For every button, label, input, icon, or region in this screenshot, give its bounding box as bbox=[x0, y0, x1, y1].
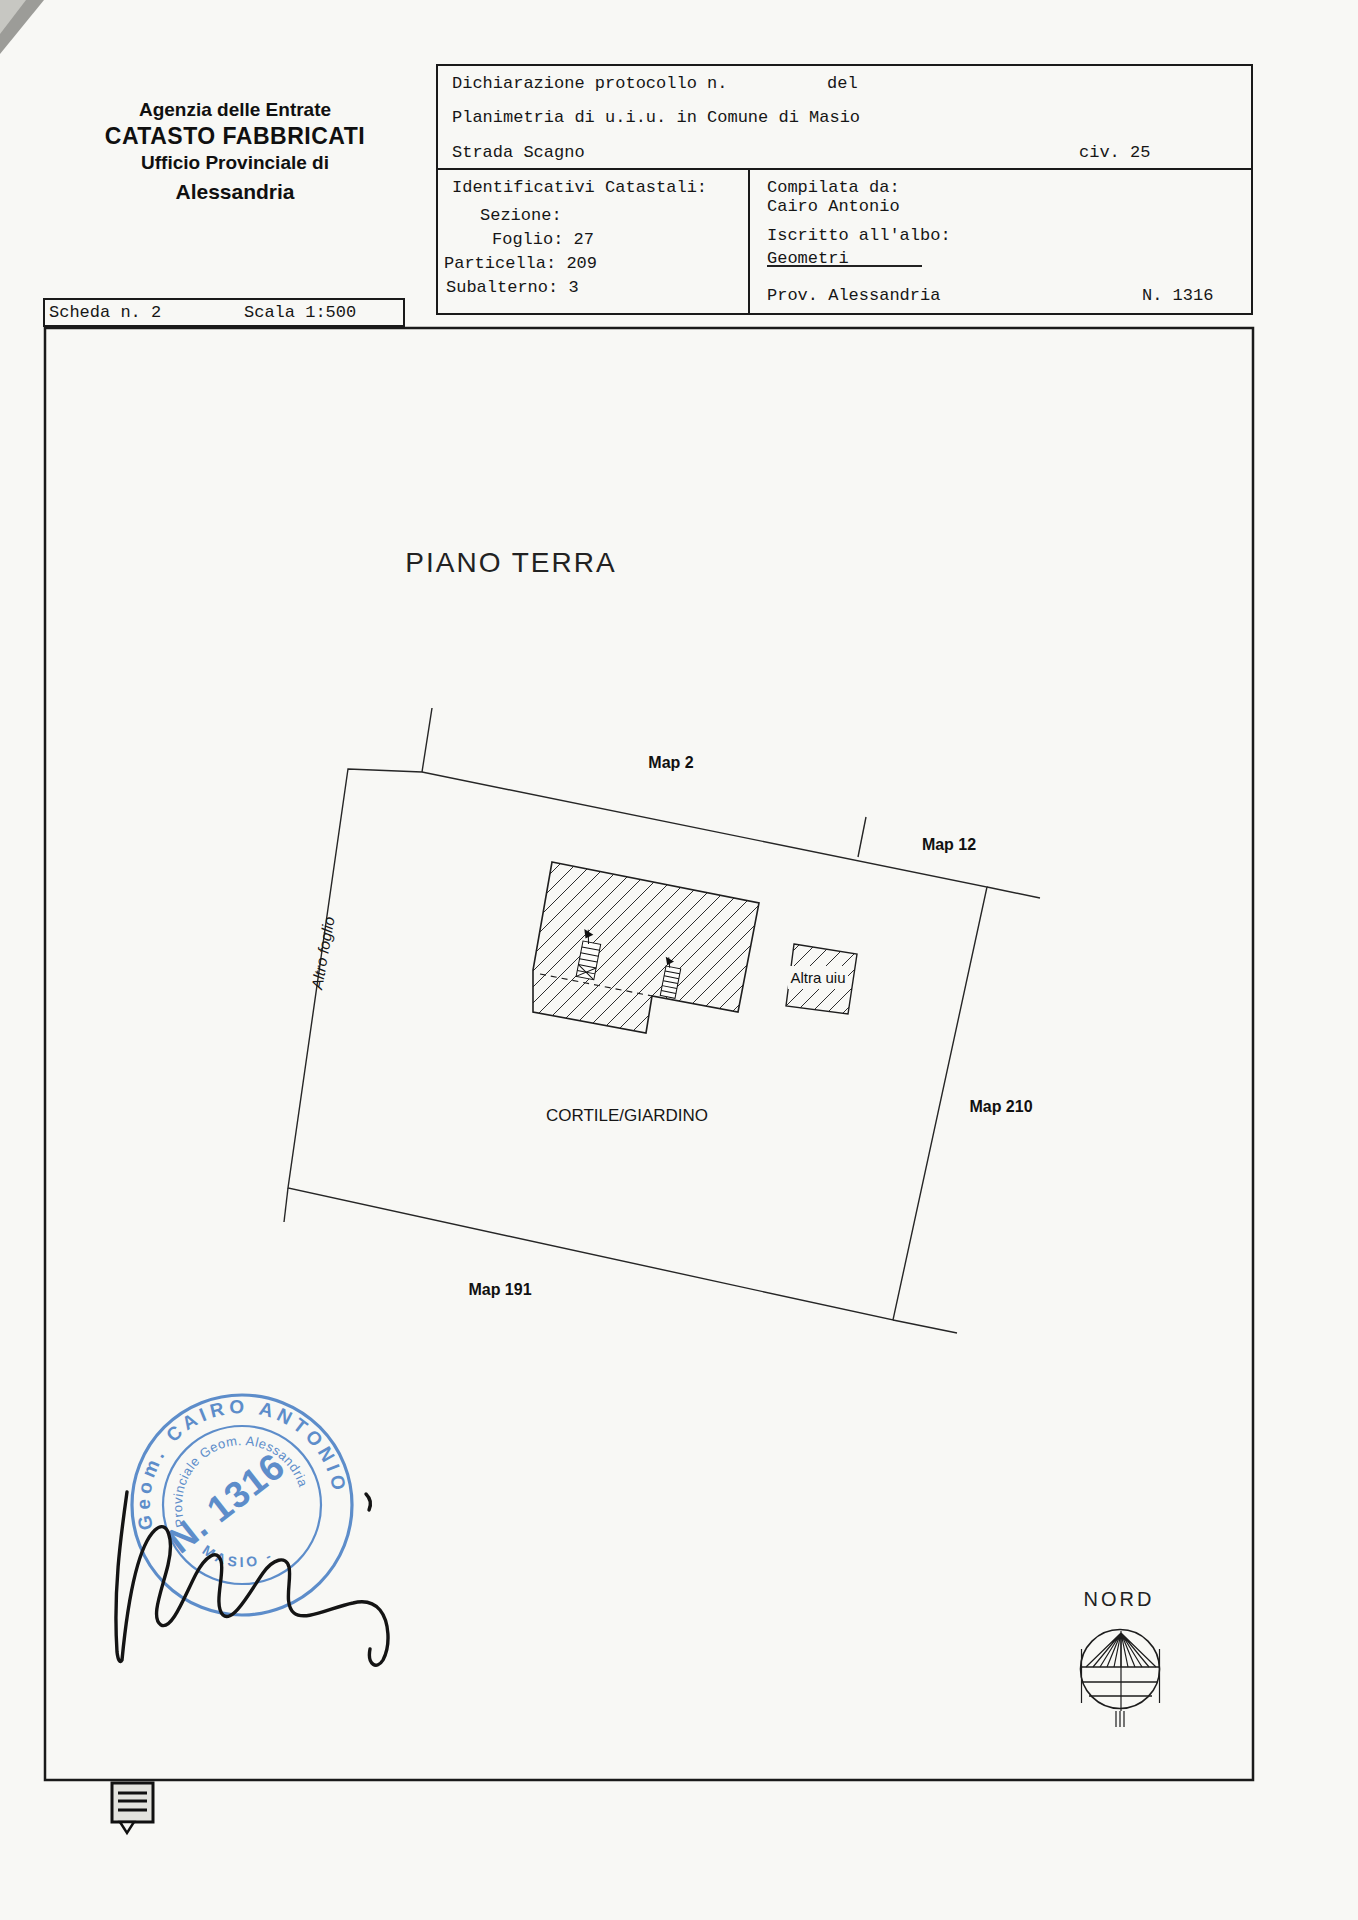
scala-label: Scala 1:500 bbox=[244, 303, 356, 322]
agency-header: Agenzia delle Entrate CATASTO FABBRICATI… bbox=[70, 98, 400, 205]
signature-stroke bbox=[116, 1492, 388, 1665]
agency-line-3: Ufficio Provinciale di bbox=[70, 151, 400, 175]
plan-title: PIANO TERRA bbox=[405, 547, 616, 578]
scheda-box: Scheda n. 2 Scala 1:500 bbox=[43, 298, 405, 327]
parcel-boundary bbox=[284, 708, 1040, 1333]
altra-uiu-unit: Altra uiu bbox=[786, 944, 857, 1014]
compilata-title: Compilata da: bbox=[767, 178, 900, 197]
sezione-field: Sezione: bbox=[480, 206, 562, 225]
north-compass: NORD bbox=[1081, 1588, 1161, 1727]
civ-number: civ. 25 bbox=[1079, 143, 1150, 162]
nord-label: NORD bbox=[1084, 1588, 1155, 1610]
box-divider bbox=[748, 170, 750, 313]
protocol-del-label: del bbox=[827, 74, 858, 93]
planimetria-line: Planimetria di u.i.u. in Comune di Masio bbox=[452, 108, 860, 127]
albo-number: N. 1316 bbox=[1142, 286, 1213, 305]
boundary-tick bbox=[284, 1188, 288, 1222]
catastali-compilata-row: Identificativi Catastali: Sezione: Fogli… bbox=[436, 168, 1253, 315]
declaration-box: Dichiarazione protocollo n. del Planimet… bbox=[436, 64, 1253, 170]
altra-uiu-label: Altra uiu bbox=[790, 969, 845, 986]
boundary-tick bbox=[422, 708, 432, 772]
boundary-tick bbox=[893, 1320, 957, 1333]
subalterno-field: Subalterno: 3 bbox=[446, 278, 579, 297]
compilata-name: Cairo Antonio bbox=[767, 197, 900, 216]
foglio-field: Foglio: 27 bbox=[492, 230, 594, 249]
street-line: Strada Scagno bbox=[452, 143, 585, 162]
altro-foglio-label: Altro foglio bbox=[308, 915, 338, 991]
boundary-tick bbox=[858, 817, 866, 857]
agency-line-2: CATASTO FABBRICATI bbox=[70, 121, 400, 151]
albo-label: Iscritto all'albo: bbox=[767, 226, 951, 245]
cortile-label: CORTILE/GIARDINO bbox=[546, 1106, 708, 1125]
prov-field: Prov. Alessandria bbox=[767, 286, 940, 305]
albo-underline bbox=[767, 265, 922, 267]
catastali-title: Identificativi Catastali: bbox=[452, 178, 707, 197]
particella-field: Particella: 209 bbox=[444, 254, 597, 273]
map210-label: Map 210 bbox=[969, 1098, 1032, 1115]
boundary-tick bbox=[987, 887, 1040, 898]
building-footprint bbox=[533, 862, 759, 1033]
map12-label: Map 12 bbox=[922, 836, 976, 853]
map2-label: Map 2 bbox=[648, 754, 693, 771]
signature-mark bbox=[366, 1494, 370, 1510]
compass-icon bbox=[1081, 1630, 1161, 1728]
map191-label: Map 191 bbox=[468, 1281, 531, 1298]
agency-line-1: Agenzia delle Entrate bbox=[70, 98, 400, 121]
note-bubble-icon bbox=[112, 1783, 153, 1833]
signature bbox=[116, 1492, 388, 1665]
scheda-label: Scheda n. 2 bbox=[49, 303, 161, 322]
protocol-label: Dichiarazione protocollo n. bbox=[452, 74, 727, 93]
agency-line-4: Alessandria bbox=[70, 178, 400, 205]
scan-corner-artifact bbox=[0, 0, 44, 54]
